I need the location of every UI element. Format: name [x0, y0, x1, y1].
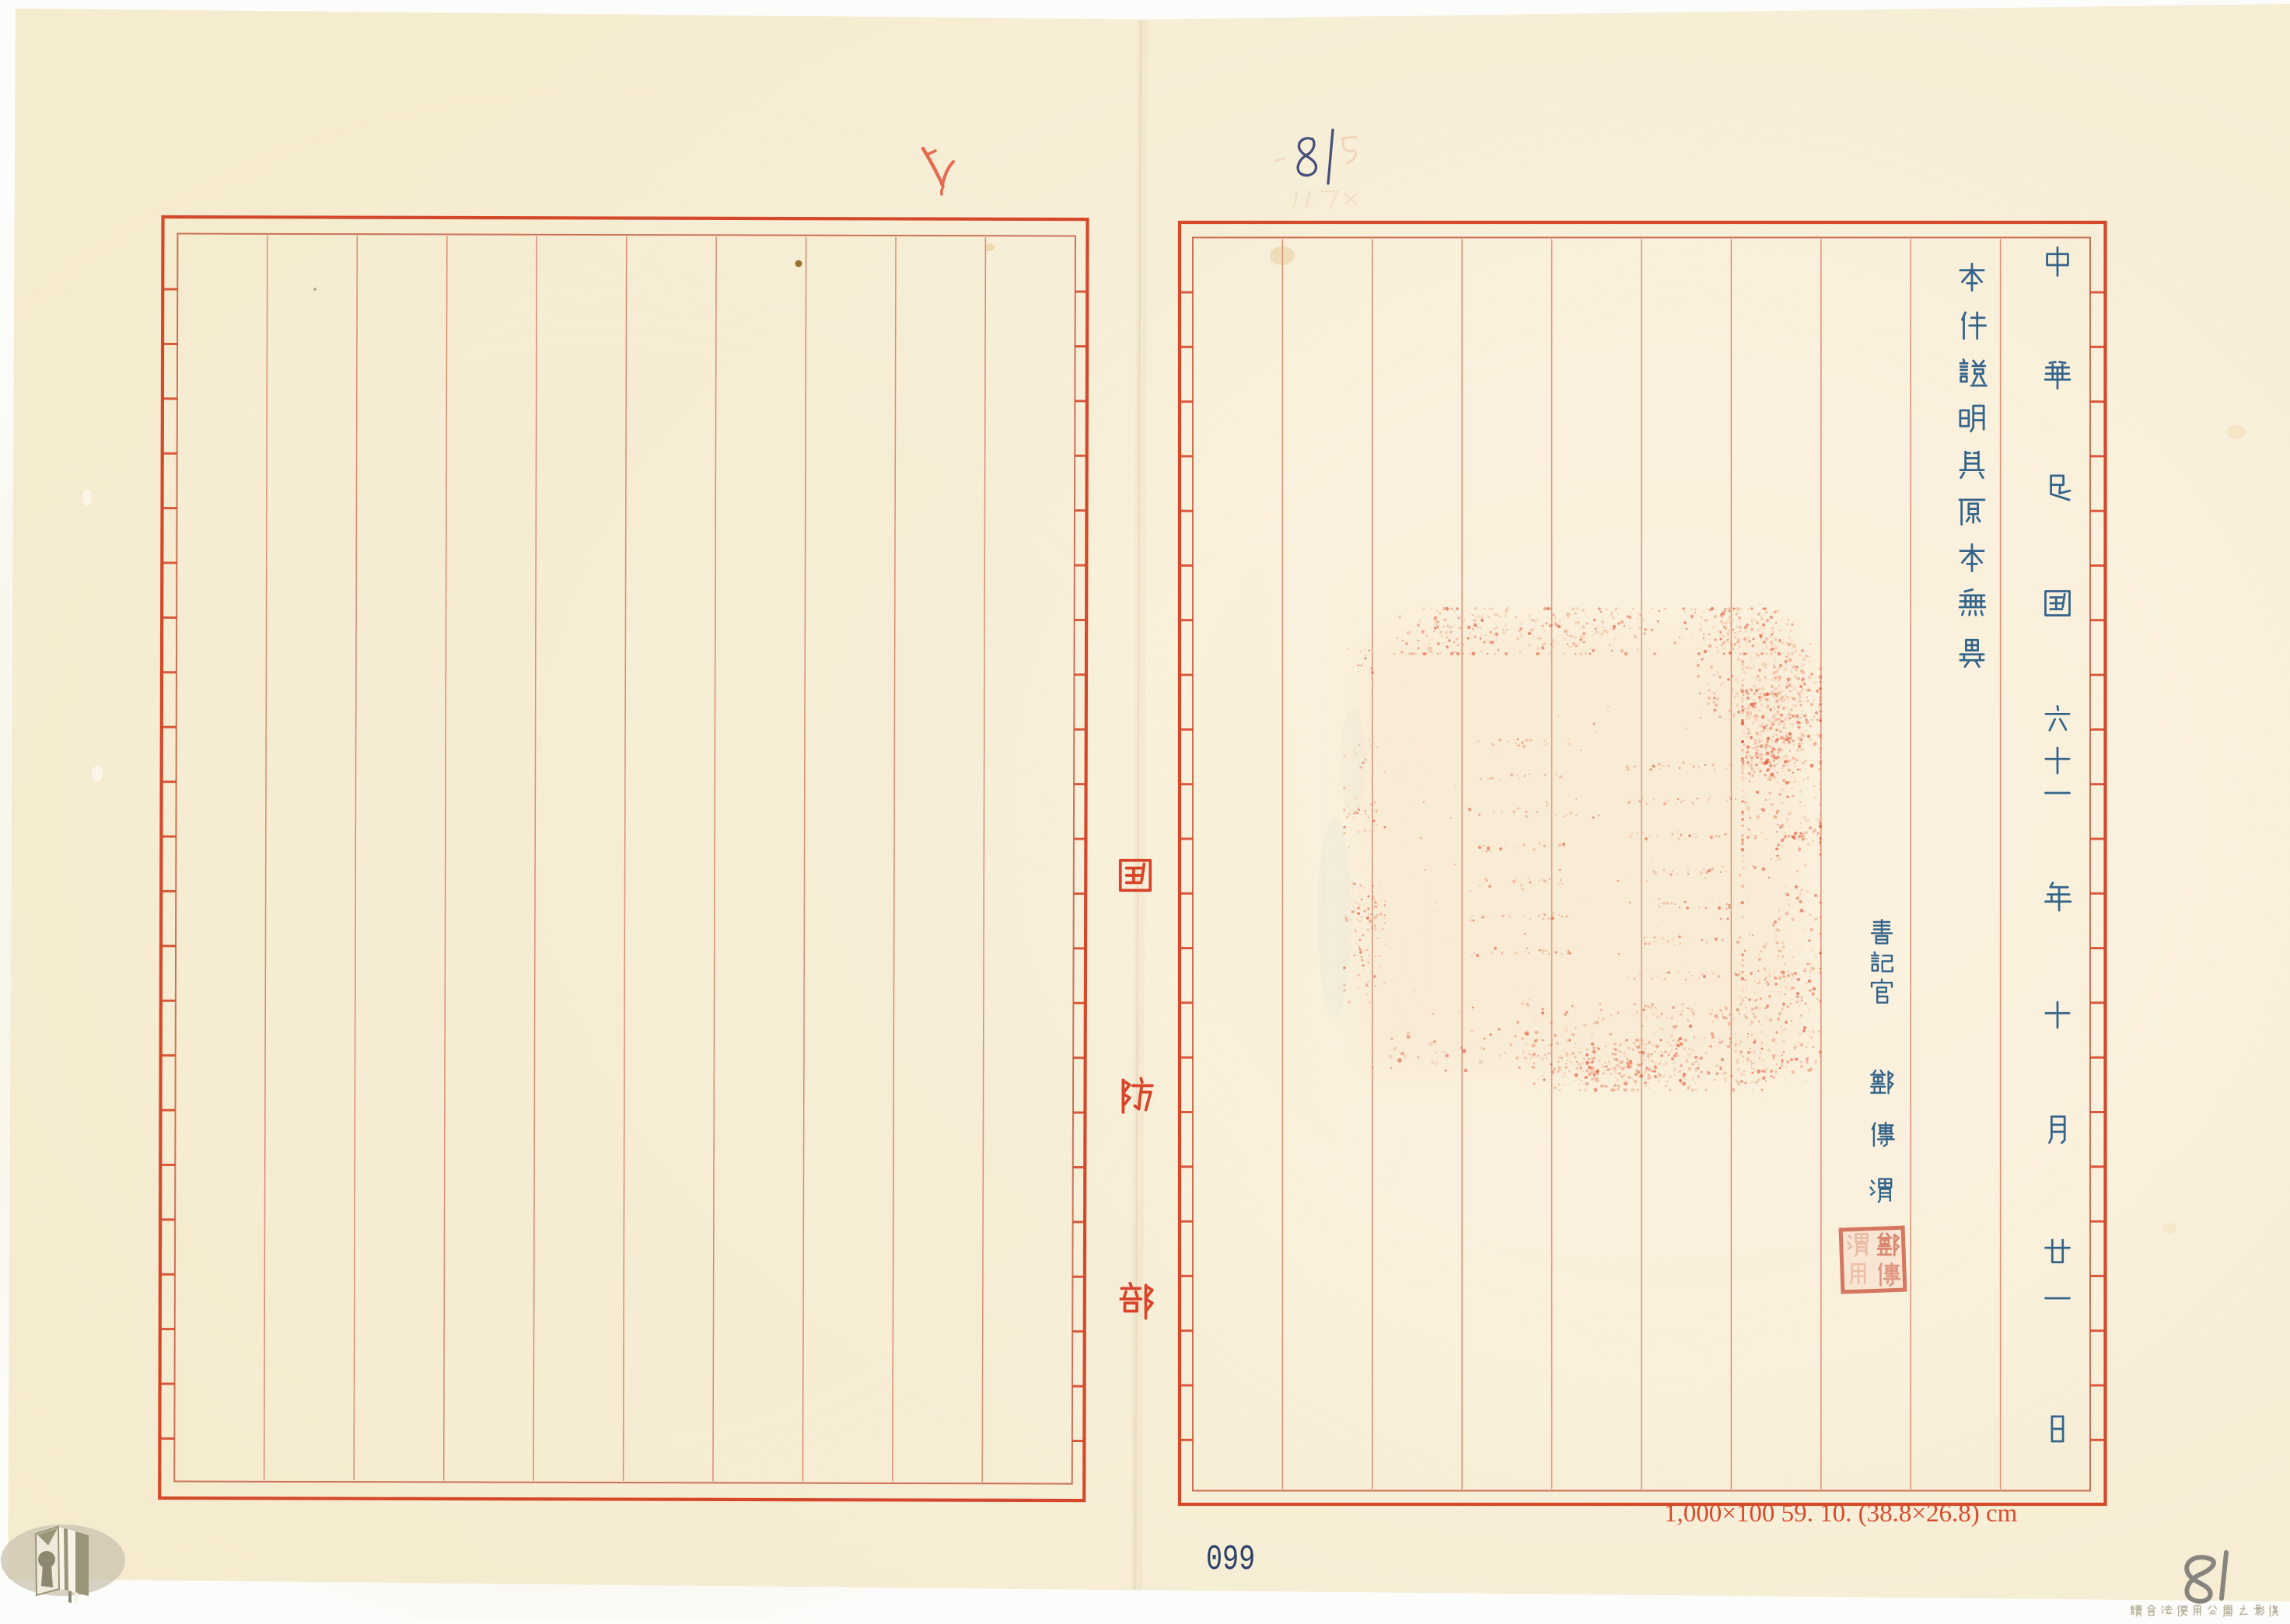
svg-text:1,000×100 59. 10. (38.8×26.8): 1,000×100 59. 10. (38.8×26.8) cm	[1664, 1500, 2018, 1528]
svg-text:099: 099	[1206, 1540, 1255, 1580]
